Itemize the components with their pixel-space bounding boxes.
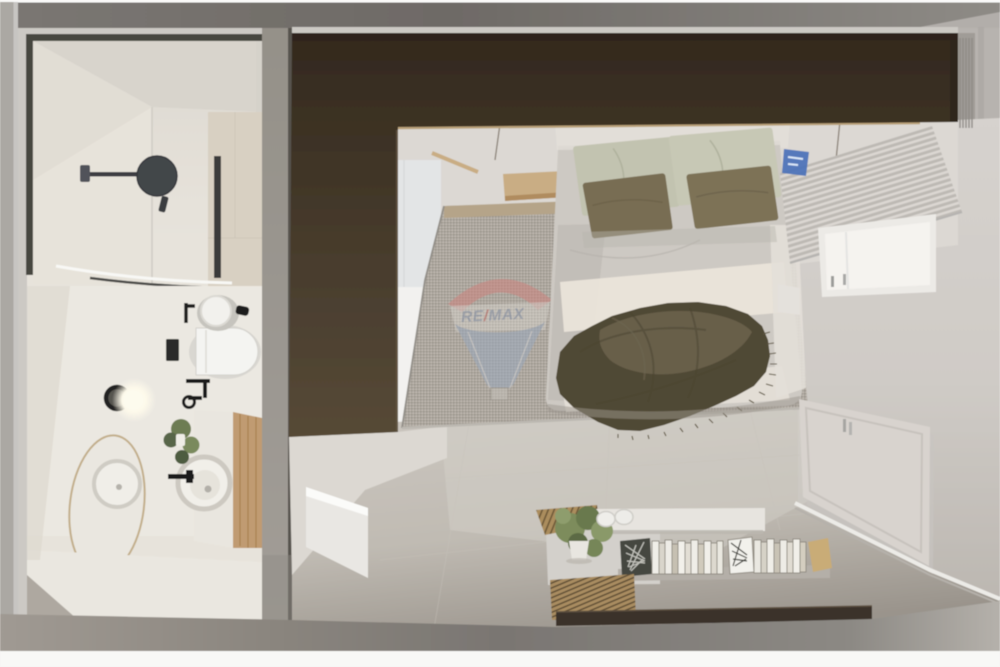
svg-text:RE/MAX: RE/MAX [461, 306, 526, 326]
